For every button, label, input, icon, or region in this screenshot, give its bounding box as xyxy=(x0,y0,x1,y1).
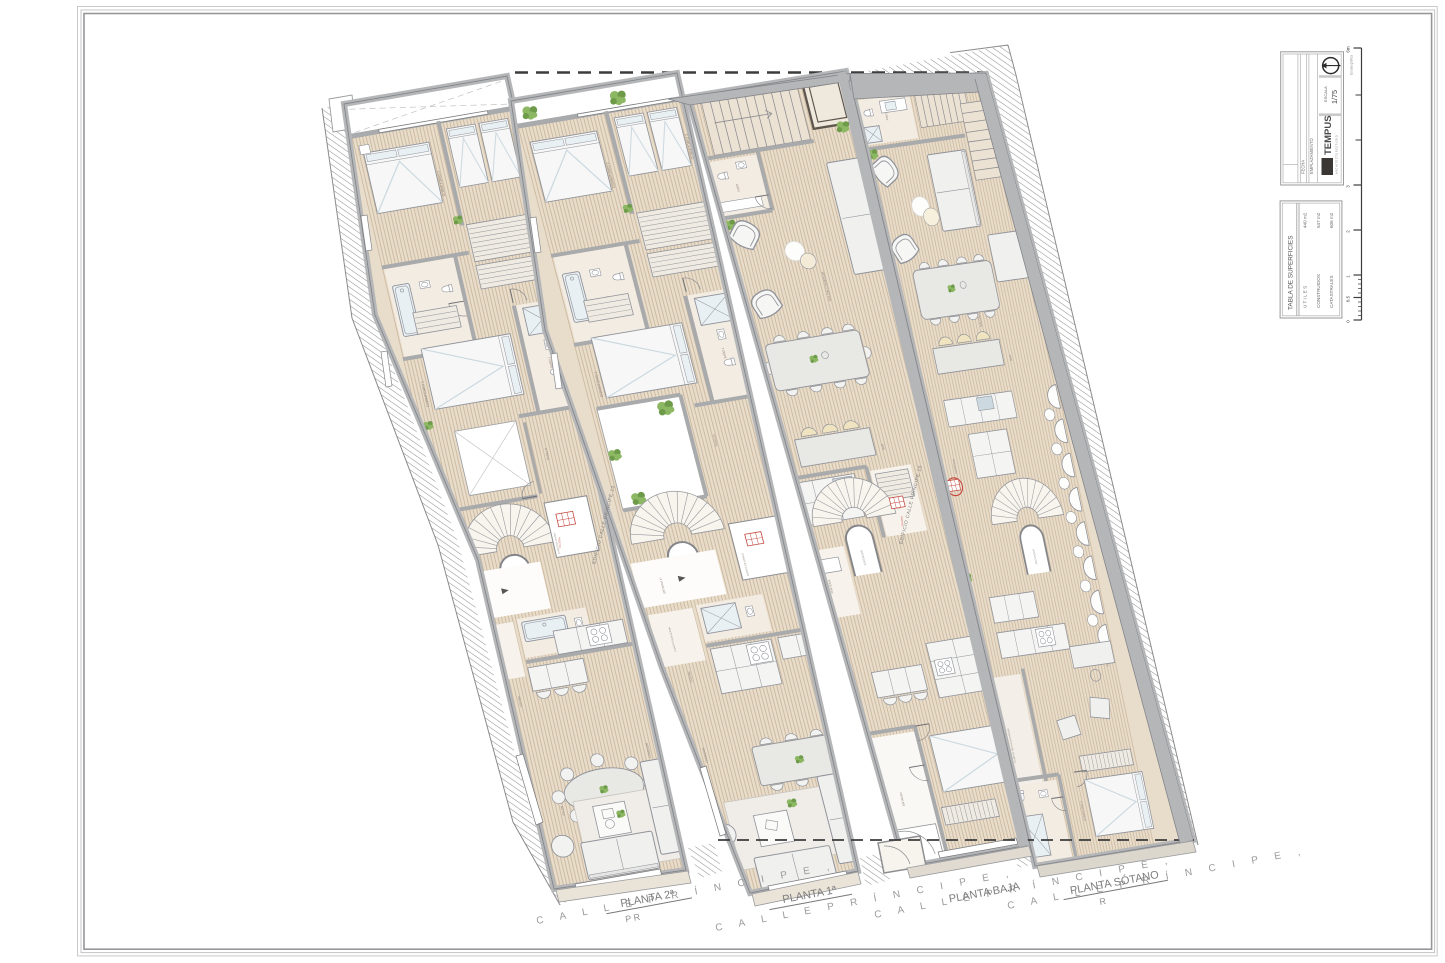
svg-text:CATASTRALES: CATASTRALES xyxy=(1329,275,1334,308)
svg-text:FECHA: FECHA xyxy=(1300,160,1305,174)
svg-text:A R C H I T E C T U R E S T U: A R C H I T E C T U R E S T U D I O xyxy=(1336,135,1339,174)
svg-text:440 m2: 440 m2 xyxy=(1303,212,1308,228)
svg-text:CONSTRUIDOS: CONSTRUIDOS xyxy=(1316,274,1321,308)
svg-text:EMPLAZAMIENTO: EMPLAZAMIENTO xyxy=(1309,138,1314,174)
svg-text:TEMPUS: TEMPUS xyxy=(1323,115,1334,155)
svg-text:CALDERA: CALDERA xyxy=(558,537,562,549)
svg-text:U T I L E S: U T I L E S xyxy=(1303,286,1308,308)
svg-text:6m: 6m xyxy=(1346,46,1351,53)
svg-text:Escala gráfica: Escala gráfica xyxy=(1350,55,1354,75)
svg-text:606 m2: 606 m2 xyxy=(1329,212,1334,228)
svg-text:0.5: 0.5 xyxy=(1346,295,1351,302)
svg-text:ESCALA: ESCALA xyxy=(1323,86,1328,102)
svg-text:547 m2: 547 m2 xyxy=(1316,212,1321,228)
svg-text:TABLA DE SUPERFICIES: TABLA DE SUPERFICIES xyxy=(1288,236,1295,310)
svg-text:1/75: 1/75 xyxy=(1330,90,1339,104)
